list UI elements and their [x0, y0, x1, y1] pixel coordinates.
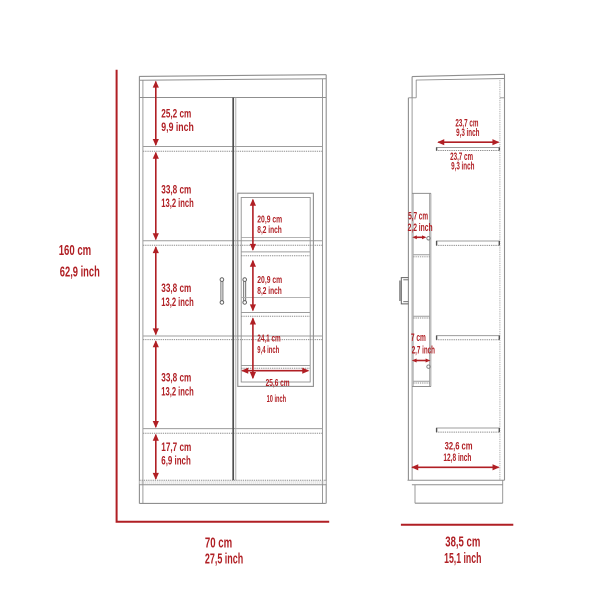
svg-text:33,8 cm: 33,8 cm: [161, 183, 191, 197]
svg-text:7 cm: 7 cm: [411, 332, 426, 344]
svg-text:12,8 inch: 12,8 inch: [443, 452, 471, 464]
svg-text:13,2 inch: 13,2 inch: [161, 385, 194, 399]
svg-text:2,2 inch: 2,2 inch: [408, 222, 433, 234]
svg-text:38,5 cm: 38,5 cm: [445, 533, 480, 550]
svg-text:9,9 inch: 9,9 inch: [161, 120, 194, 134]
svg-text:13,2 inch: 13,2 inch: [161, 196, 194, 210]
svg-text:25,2 cm: 25,2 cm: [161, 107, 191, 121]
svg-text:9,4 inch: 9,4 inch: [257, 344, 279, 356]
svg-text:17,7 cm: 17,7 cm: [161, 440, 191, 454]
svg-text:33,8 cm: 33,8 cm: [161, 281, 191, 295]
svg-text:13,2 inch: 13,2 inch: [161, 295, 194, 309]
svg-text:5,7 cm: 5,7 cm: [408, 211, 428, 223]
svg-text:27,5 inch: 27,5 inch: [205, 551, 243, 568]
svg-text:9,3 inch: 9,3 inch: [451, 161, 474, 173]
svg-text:10 inch: 10 inch: [267, 393, 287, 405]
svg-text:160 cm: 160 cm: [59, 242, 91, 259]
svg-text:15,1 inch: 15,1 inch: [444, 550, 481, 567]
svg-text:32,6 cm: 32,6 cm: [445, 440, 473, 452]
svg-text:62,9 inch: 62,9 inch: [60, 264, 100, 281]
svg-text:70 cm: 70 cm: [205, 535, 232, 552]
svg-text:8,2 inch: 8,2 inch: [257, 285, 282, 297]
svg-text:33,8 cm: 33,8 cm: [161, 371, 191, 385]
svg-text:2,7 inch: 2,7 inch: [412, 344, 435, 356]
svg-text:25,6 cm: 25,6 cm: [266, 377, 290, 389]
svg-text:6,9 inch: 6,9 inch: [161, 454, 191, 468]
svg-text:8,2 inch: 8,2 inch: [257, 224, 282, 236]
svg-text:9,3 inch: 9,3 inch: [456, 127, 479, 139]
